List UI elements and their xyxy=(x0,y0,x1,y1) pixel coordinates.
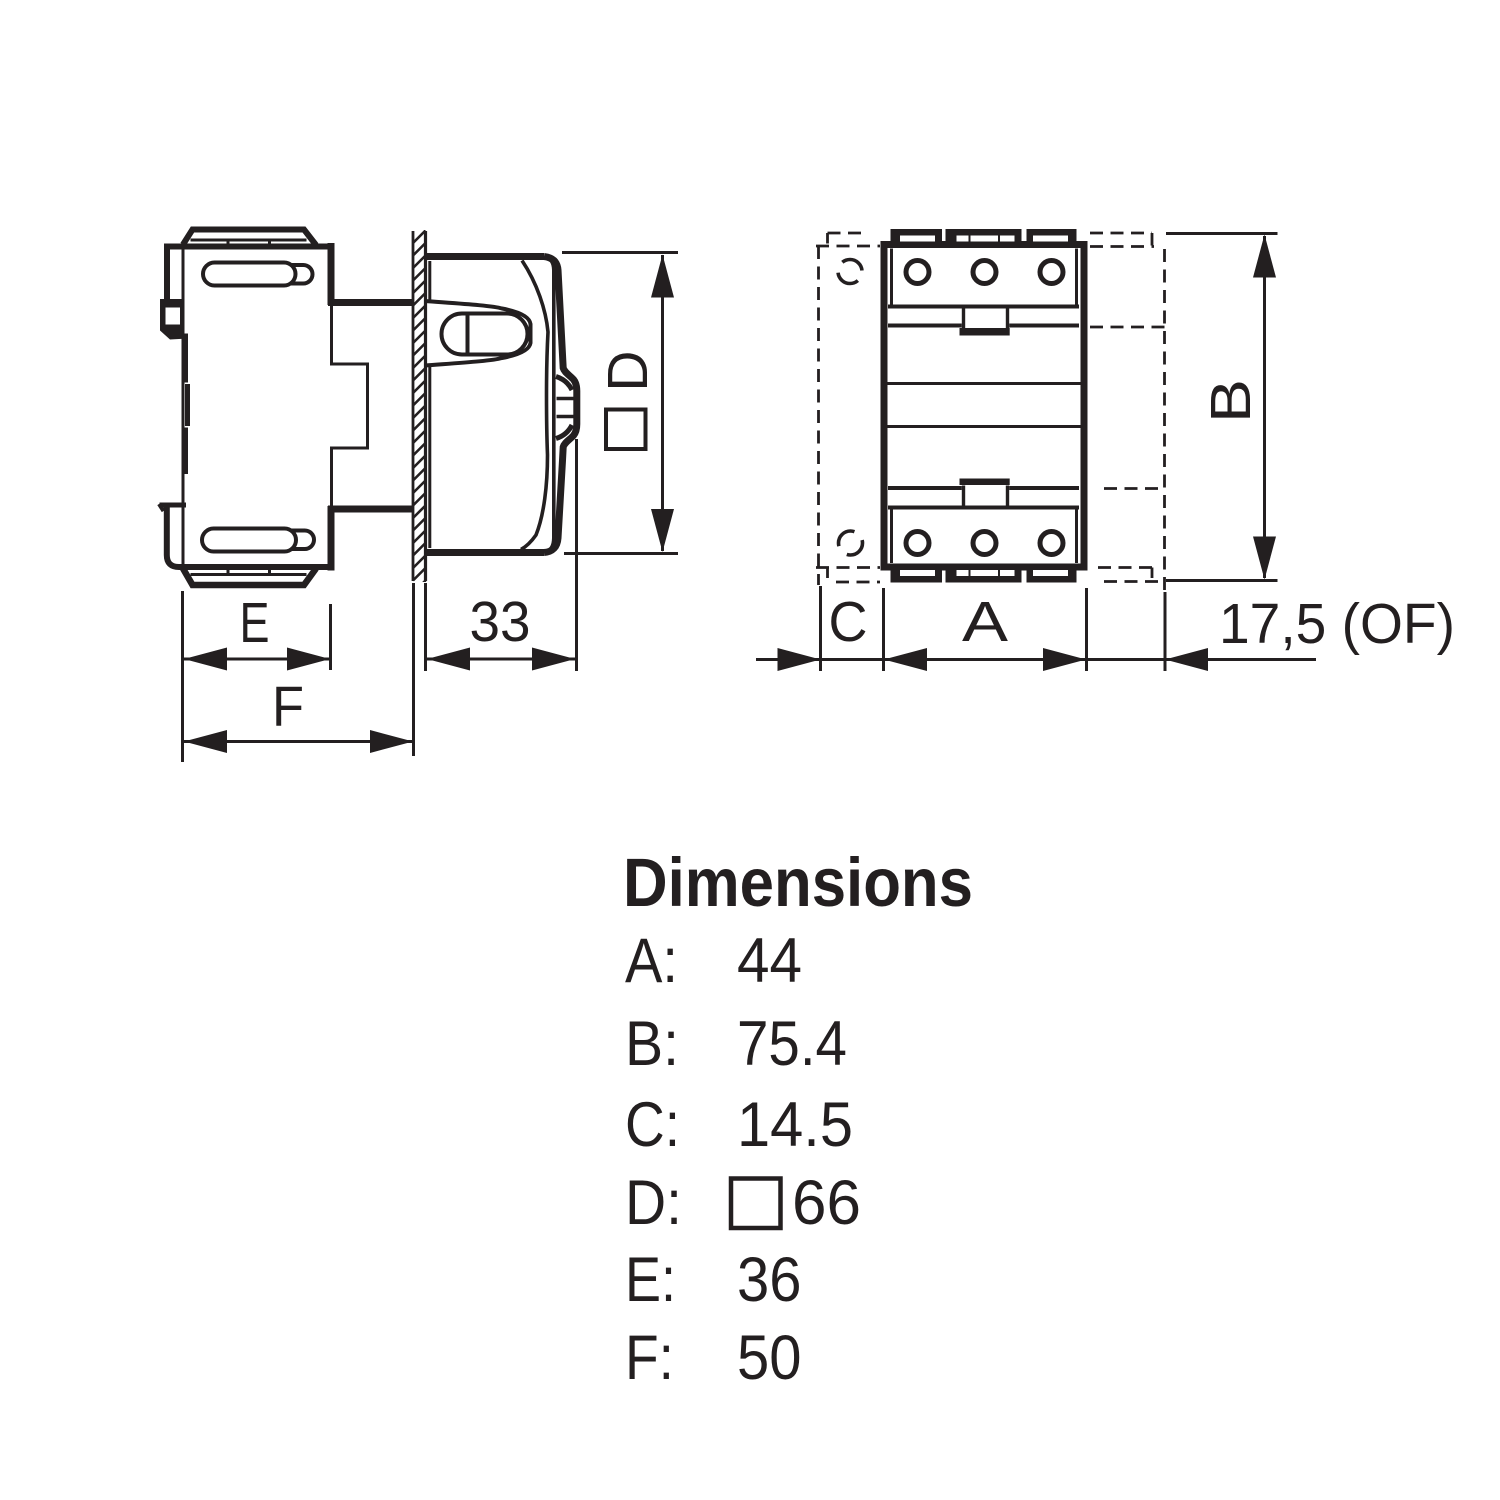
svg-text:C: C xyxy=(829,590,868,654)
svg-text:A: A xyxy=(962,590,1008,654)
svg-text:44: 44 xyxy=(737,926,802,996)
svg-text:D:: D: xyxy=(625,1168,682,1238)
svg-text:36: 36 xyxy=(737,1245,802,1315)
svg-text:33: 33 xyxy=(470,590,531,654)
svg-text:F: F xyxy=(272,675,304,739)
svg-text:F:: F: xyxy=(625,1323,674,1393)
svg-text:E: E xyxy=(240,591,270,655)
svg-text:14.5: 14.5 xyxy=(737,1090,853,1160)
svg-text:Dimensions: Dimensions xyxy=(623,844,973,921)
svg-text:17,5 (OF): 17,5 (OF) xyxy=(1219,592,1455,656)
svg-text:E:: E: xyxy=(625,1245,676,1315)
svg-text:75.4: 75.4 xyxy=(737,1009,847,1079)
svg-text:C:: C: xyxy=(625,1090,680,1160)
svg-text:B:: B: xyxy=(625,1009,679,1079)
svg-text:D: D xyxy=(596,350,660,391)
svg-text:A:: A: xyxy=(625,926,678,996)
svg-text:66: 66 xyxy=(792,1168,861,1238)
svg-text:50: 50 xyxy=(737,1323,802,1393)
svg-text:B: B xyxy=(1199,379,1263,423)
